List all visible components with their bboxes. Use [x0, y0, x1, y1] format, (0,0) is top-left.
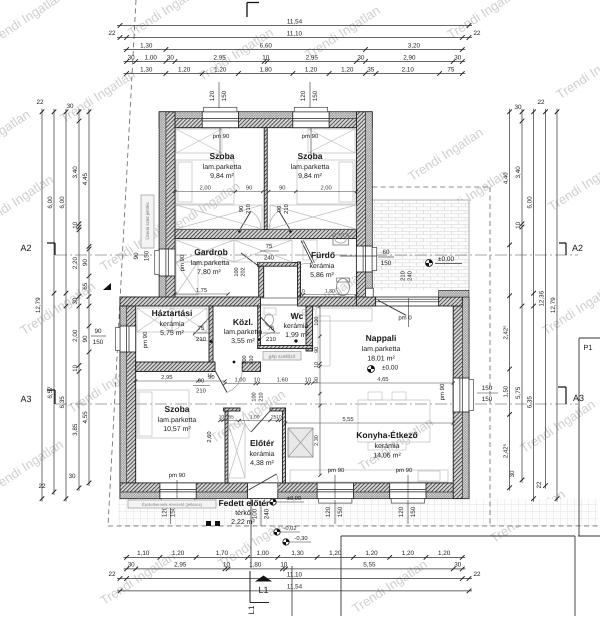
svg-text:30: 30 — [514, 104, 522, 111]
svg-text:A2: A2 — [20, 243, 31, 253]
svg-text:30: 30 — [454, 562, 462, 569]
svg-text:3,20: 3,20 — [408, 42, 421, 49]
svg-text:6,35: 6,35 — [59, 396, 66, 409]
svg-text:150: 150 — [337, 506, 344, 517]
svg-text:kerámia: kerámia — [375, 442, 400, 450]
svg-text:1,20: 1,20 — [172, 550, 185, 557]
svg-text:120: 120 — [209, 90, 216, 101]
svg-text:2,95: 2,95 — [213, 54, 226, 61]
svg-text:-0,02: -0,02 — [283, 525, 296, 532]
svg-text:kerámia: kerámia — [160, 320, 185, 328]
svg-text:3,40: 3,40 — [515, 166, 522, 179]
svg-text:2,90: 2,90 — [403, 54, 416, 61]
svg-text:pm 90: pm 90 — [179, 254, 186, 271]
svg-text:65: 65 — [82, 282, 89, 290]
svg-text:pm 90: pm 90 — [213, 133, 230, 140]
svg-text:-0,30: -0,30 — [294, 535, 307, 542]
svg-text:2,20: 2,20 — [72, 256, 79, 269]
svg-text:75: 75 — [268, 325, 275, 332]
svg-text:Wc: Wc — [291, 311, 304, 321]
svg-text:150: 150 — [144, 250, 151, 261]
svg-text:30: 30 — [167, 54, 175, 61]
svg-text:10,57 m²: 10,57 m² — [163, 426, 191, 433]
svg-text:lam.parketta: lam.parketta — [158, 416, 197, 424]
svg-text:gép szellőző: gép szellőző — [269, 354, 296, 360]
svg-text:12,79: 12,79 — [550, 297, 557, 313]
svg-text:9,84 m²: 9,84 m² — [298, 173, 322, 180]
svg-text:210: 210 — [245, 204, 252, 214]
svg-text:P1: P1 — [583, 343, 592, 352]
svg-text:2,42⁵: 2,42⁵ — [503, 443, 510, 458]
svg-text:210: 210 — [249, 355, 255, 364]
svg-text:150: 150 — [93, 339, 104, 346]
svg-text:210: 210 — [283, 204, 290, 214]
svg-text:90: 90 — [314, 377, 320, 383]
svg-text:120: 120 — [398, 506, 405, 517]
svg-text:90: 90 — [276, 206, 283, 212]
svg-text:210: 210 — [266, 336, 277, 343]
svg-text:1,00: 1,00 — [234, 377, 245, 384]
svg-text:15: 15 — [207, 373, 213, 379]
svg-text:5,75: 5,75 — [515, 386, 522, 399]
svg-text:30: 30 — [66, 103, 74, 110]
svg-text:L1: L1 — [247, 605, 256, 614]
svg-text:2,30: 2,30 — [314, 435, 320, 446]
svg-text:90: 90 — [82, 259, 89, 267]
svg-text:90: 90 — [82, 335, 89, 343]
svg-text:1,75: 1,75 — [196, 288, 207, 294]
svg-text:2,00: 2,00 — [72, 329, 79, 342]
svg-text:Háztartási: Háztartási — [152, 308, 193, 318]
svg-text:10: 10 — [72, 364, 79, 372]
svg-text:lam.parketta: lam.parketta — [191, 259, 230, 267]
svg-text:térkő: térkő — [235, 509, 251, 517]
svg-text:6,60: 6,60 — [260, 42, 273, 49]
svg-text:6,35: 6,35 — [526, 396, 533, 409]
svg-text:Fedett előtér: Fedett előtér — [218, 498, 270, 508]
svg-text:2,42⁵: 2,42⁵ — [503, 325, 510, 340]
svg-text:2,95: 2,95 — [174, 562, 187, 569]
svg-text:lam.parketta: lam.parketta — [203, 163, 242, 171]
svg-text:90: 90 — [133, 252, 140, 260]
svg-text:18,01 m²: 18,01 m² — [367, 356, 395, 363]
svg-text:Nappali: Nappali — [366, 333, 397, 343]
svg-text:2,10: 2,10 — [402, 66, 415, 73]
svg-text:1,20: 1,20 — [402, 550, 415, 557]
svg-text:10: 10 — [280, 562, 288, 569]
svg-text:7,80 m²: 7,80 m² — [197, 269, 221, 276]
svg-text:±0,00: ±0,00 — [287, 495, 301, 502]
svg-text:1,30: 1,30 — [140, 66, 153, 73]
svg-text:pm 90: pm 90 — [302, 133, 319, 140]
svg-text:1,20: 1,20 — [305, 66, 318, 73]
svg-text:22: 22 — [536, 481, 543, 489]
svg-text:1,30: 1,30 — [291, 550, 304, 557]
svg-text:kerámia: kerámia — [284, 322, 309, 330]
svg-text:90: 90 — [279, 185, 285, 192]
svg-text:1,20: 1,20 — [329, 550, 342, 557]
svg-text:90: 90 — [246, 185, 252, 192]
svg-text:A2: A2 — [572, 243, 583, 253]
svg-text:1,00: 1,00 — [145, 54, 158, 61]
svg-text:4,40: 4,40 — [503, 172, 510, 184]
svg-text:4,45: 4,45 — [82, 172, 89, 185]
svg-text:1,30: 1,30 — [140, 42, 153, 49]
svg-text:210: 210 — [400, 271, 407, 281]
svg-text:30: 30 — [72, 297, 79, 305]
svg-text:10: 10 — [219, 415, 225, 421]
svg-text:1,70: 1,70 — [216, 550, 229, 557]
svg-text:5,75 m²: 5,75 m² — [160, 330, 184, 337]
svg-text:lam.parketta: lam.parketta — [362, 345, 401, 353]
svg-text:150: 150 — [381, 260, 392, 267]
svg-text:55: 55 — [228, 415, 234, 421]
svg-text:22: 22 — [38, 483, 46, 490]
svg-text:12,79: 12,79 — [35, 297, 42, 313]
svg-text:240: 240 — [264, 255, 275, 262]
svg-text:lam.parketta: lam.parketta — [224, 328, 263, 336]
svg-text:11,10: 11,10 — [287, 30, 303, 37]
svg-text:10: 10 — [276, 415, 282, 421]
svg-text:4,38 m²: 4,38 m² — [250, 460, 274, 467]
svg-text:Szoba: Szoba — [209, 151, 234, 161]
svg-text:100: 100 — [252, 392, 258, 401]
svg-text:30: 30 — [128, 54, 136, 61]
svg-text:6,57: 6,57 — [47, 386, 54, 399]
svg-text:10: 10 — [515, 221, 522, 229]
svg-text:10: 10 — [314, 362, 320, 368]
svg-text:1,80: 1,80 — [259, 66, 272, 73]
svg-text:2,95: 2,95 — [306, 54, 319, 61]
svg-text:75: 75 — [198, 325, 205, 332]
svg-text:12,36: 12,36 — [538, 290, 545, 306]
svg-text:5,86 m²: 5,86 m² — [310, 272, 334, 279]
svg-text:90: 90 — [238, 206, 245, 212]
svg-text:240: 240 — [407, 271, 414, 281]
svg-text:10: 10 — [72, 221, 79, 229]
svg-text:30: 30 — [509, 470, 516, 478]
svg-text:30: 30 — [68, 473, 76, 480]
svg-text:30: 30 — [357, 54, 365, 61]
svg-text:pm 0: pm 0 — [398, 315, 412, 322]
svg-text:4,55: 4,55 — [82, 411, 89, 424]
svg-text:Fürdő: Fürdő — [311, 250, 335, 260]
svg-text:pm 90: pm 90 — [142, 331, 149, 348]
svg-text:1,80: 1,80 — [325, 289, 335, 295]
svg-text:150: 150 — [221, 90, 228, 101]
svg-text:10: 10 — [223, 562, 231, 569]
svg-text:L1: L1 — [258, 585, 268, 595]
svg-text:1,50: 1,50 — [503, 385, 510, 397]
svg-text:pm 90: pm 90 — [396, 467, 413, 474]
svg-text:11,54: 11,54 — [287, 18, 303, 25]
svg-text:120: 120 — [300, 90, 307, 101]
svg-text:2,95: 2,95 — [161, 374, 172, 381]
svg-text:Közl.: Közl. — [233, 317, 253, 327]
svg-text:1,20: 1,20 — [341, 66, 354, 73]
svg-text:1,60: 1,60 — [277, 377, 288, 384]
svg-text:Üzemi szint jelölés: Üzemi szint jelölés — [145, 202, 150, 240]
svg-text:60: 60 — [382, 249, 390, 256]
svg-text:Gardrob: Gardrob — [194, 247, 228, 257]
svg-text:1,20: 1,20 — [214, 66, 227, 73]
svg-text:90: 90 — [94, 328, 102, 335]
svg-text:6,00: 6,00 — [526, 196, 533, 209]
svg-text:2,60: 2,60 — [206, 431, 213, 442]
svg-text:1,99 m²: 1,99 m² — [285, 332, 309, 339]
svg-text:1,20: 1,20 — [438, 550, 451, 557]
svg-text:3,40: 3,40 — [72, 166, 79, 179]
svg-text:90: 90 — [314, 347, 320, 353]
svg-text:10: 10 — [305, 377, 311, 384]
svg-text:5,55: 5,55 — [342, 417, 353, 423]
svg-text:14,06 m²: 14,06 m² — [373, 453, 401, 460]
svg-text:kerámia: kerámia — [250, 450, 275, 458]
svg-text:Szoba: Szoba — [297, 151, 322, 161]
svg-text:lam.parketta: lam.parketta — [291, 163, 330, 171]
svg-text:100: 100 — [314, 317, 320, 326]
svg-text:Szoba: Szoba — [164, 404, 189, 414]
svg-text:22: 22 — [36, 99, 44, 106]
svg-text:120: 120 — [325, 506, 332, 517]
svg-text:5,55: 5,55 — [363, 562, 376, 569]
svg-text:1,10: 1,10 — [137, 550, 150, 557]
svg-text:210: 210 — [196, 388, 206, 395]
svg-text:35: 35 — [367, 66, 375, 73]
svg-text:22: 22 — [473, 571, 481, 578]
svg-text:90: 90 — [198, 378, 204, 385]
svg-text:22: 22 — [108, 30, 116, 37]
svg-text:1,00: 1,00 — [250, 415, 260, 421]
svg-text:202: 202 — [241, 267, 247, 276]
svg-text:10: 10 — [299, 289, 305, 295]
svg-text:100: 100 — [252, 508, 259, 519]
svg-text:9,84 m²: 9,84 m² — [210, 173, 234, 180]
svg-text:22: 22 — [537, 99, 545, 106]
svg-text:Épületkermék elvezető (jelkulc: Épületkermék elvezető (jelkulcs) — [142, 502, 203, 507]
svg-text:4,65: 4,65 — [377, 376, 388, 383]
svg-text:pm 90: pm 90 — [169, 472, 186, 479]
svg-text:1,20: 1,20 — [178, 66, 191, 73]
svg-text:kerámia: kerámia — [310, 262, 335, 270]
svg-text:Konyha-Étkező: Konyha-Étkező — [356, 430, 417, 440]
svg-text:150: 150 — [482, 385, 493, 392]
svg-text:75: 75 — [447, 66, 455, 73]
svg-text:A3: A3 — [20, 394, 31, 404]
svg-text:±0,00: ±0,00 — [382, 365, 399, 372]
svg-text:A3: A3 — [573, 393, 584, 403]
svg-text:6,00: 6,00 — [47, 196, 54, 209]
svg-text:10: 10 — [253, 377, 259, 384]
svg-text:6,00: 6,00 — [59, 196, 66, 209]
svg-text:30: 30 — [128, 562, 136, 569]
svg-text:2,00: 2,00 — [200, 185, 211, 192]
svg-text:30: 30 — [454, 54, 462, 61]
svg-text:22: 22 — [473, 30, 481, 37]
svg-text:150: 150 — [482, 396, 493, 403]
svg-text:1,00: 1,00 — [257, 550, 270, 557]
svg-text:pm 90: pm 90 — [328, 467, 345, 474]
svg-text:±0,00: ±0,00 — [438, 256, 455, 263]
svg-text:10: 10 — [262, 54, 270, 61]
svg-text:1,20: 1,20 — [365, 550, 378, 557]
svg-text:210: 210 — [196, 336, 207, 343]
svg-text:150: 150 — [410, 506, 417, 517]
svg-text:150: 150 — [312, 90, 319, 101]
svg-text:100: 100 — [234, 267, 240, 276]
svg-text:3,55 m²: 3,55 m² — [231, 338, 255, 345]
svg-text:22: 22 — [108, 571, 116, 578]
svg-text:pm 90: pm 90 — [439, 383, 446, 400]
svg-text:210: 210 — [259, 392, 265, 401]
svg-text:11,10: 11,10 — [287, 571, 303, 578]
svg-text:75: 75 — [266, 243, 273, 250]
svg-text:2,00: 2,00 — [320, 185, 331, 192]
svg-text:Előtér: Előtér — [250, 438, 275, 448]
svg-text:3,85: 3,85 — [72, 423, 79, 436]
svg-text:100: 100 — [242, 355, 248, 364]
svg-text:240: 240 — [264, 508, 271, 519]
svg-text:11,54: 11,54 — [287, 584, 303, 591]
